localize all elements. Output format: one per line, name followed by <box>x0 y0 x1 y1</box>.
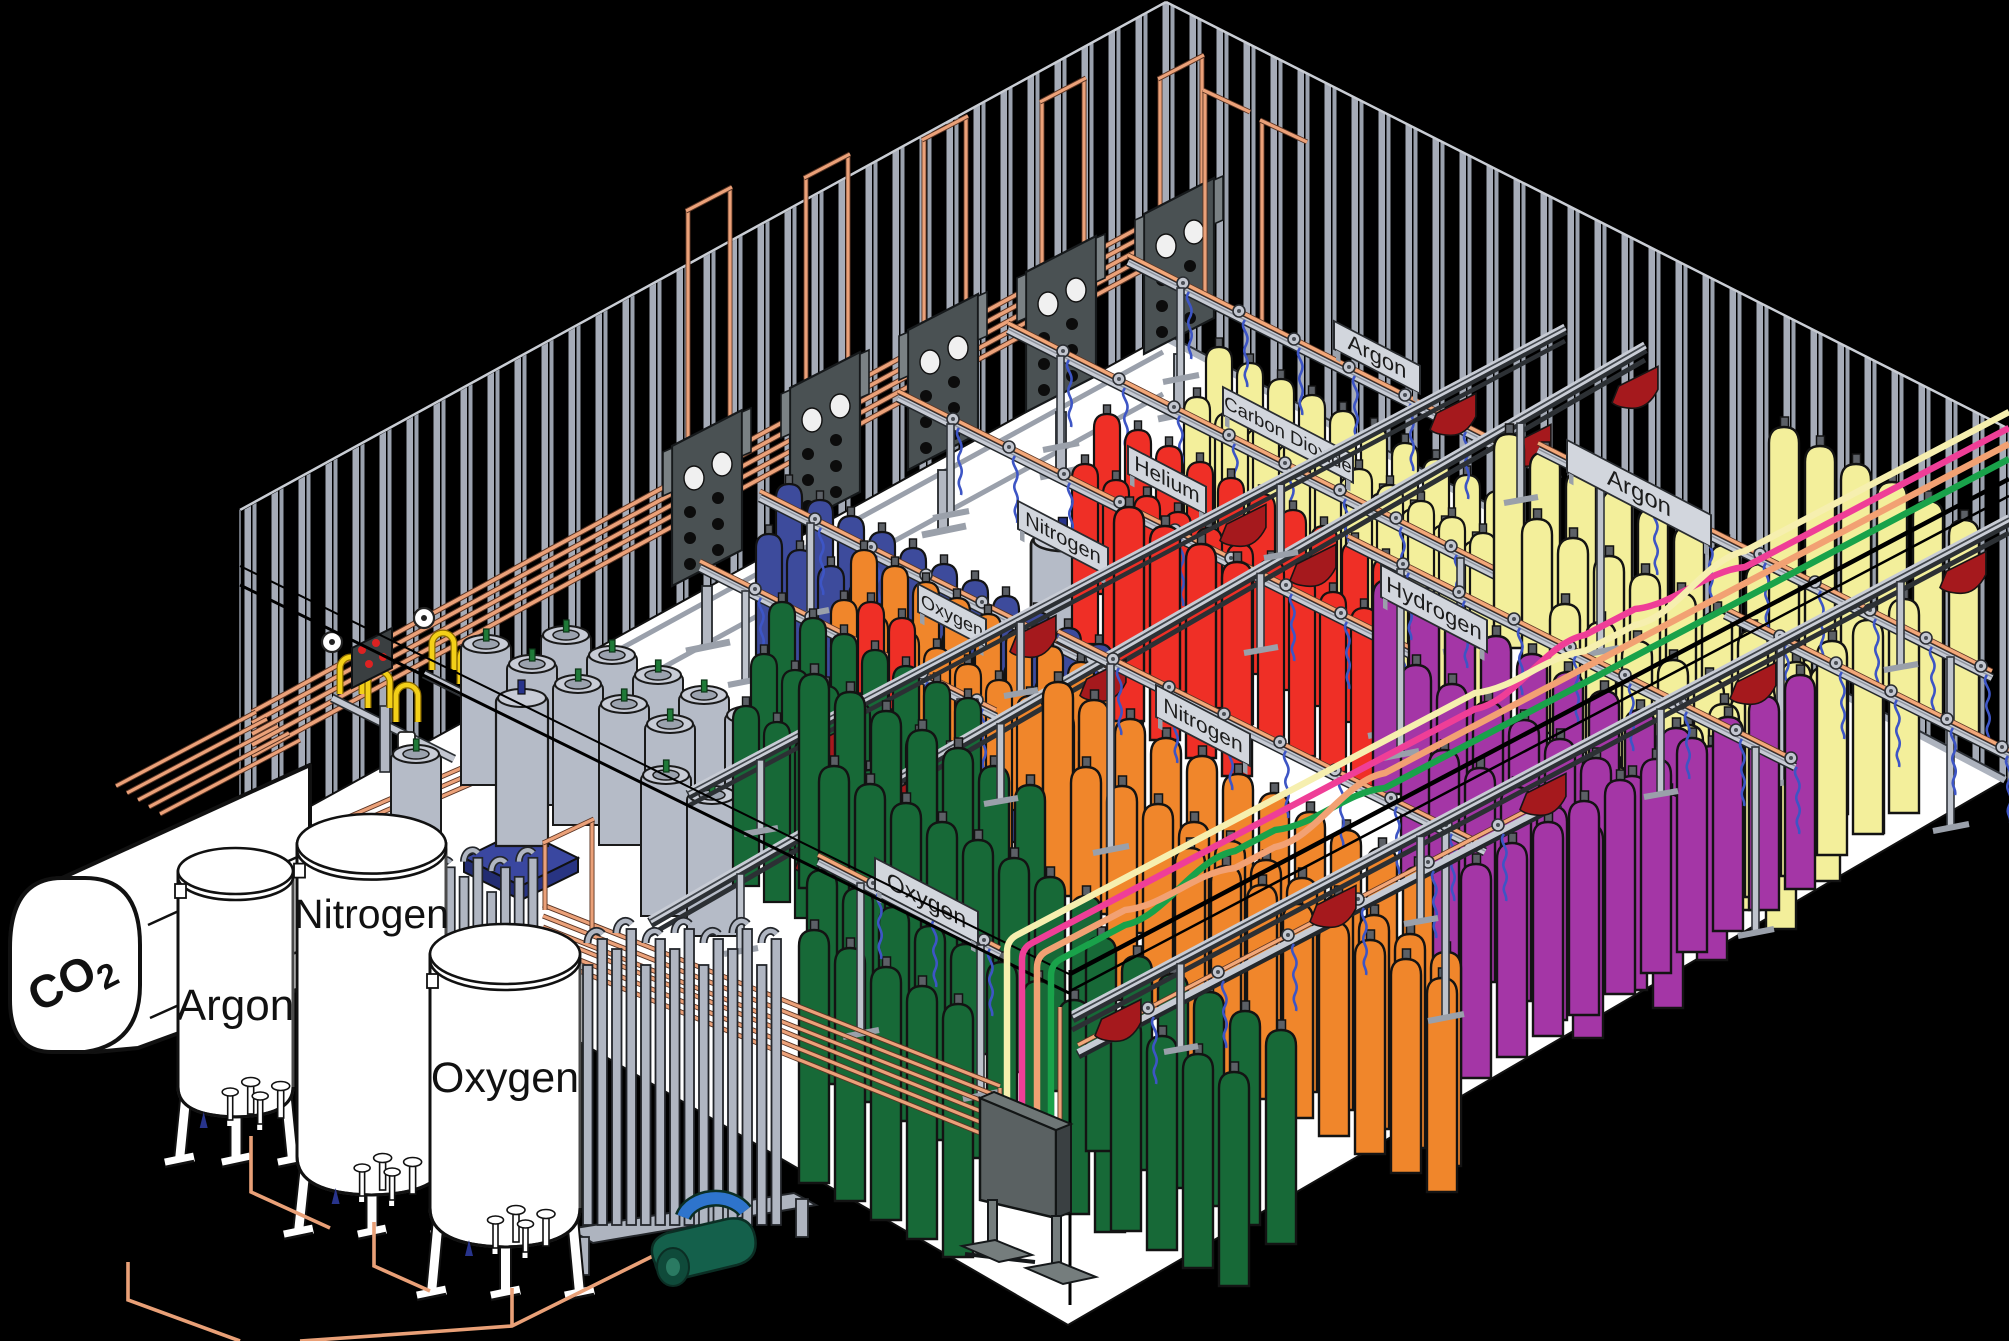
svg-text:Nitrogen: Nitrogen <box>294 891 449 937</box>
svg-text:Argon: Argon <box>177 981 294 1030</box>
svg-text:Oxygen: Oxygen <box>431 1054 579 1102</box>
